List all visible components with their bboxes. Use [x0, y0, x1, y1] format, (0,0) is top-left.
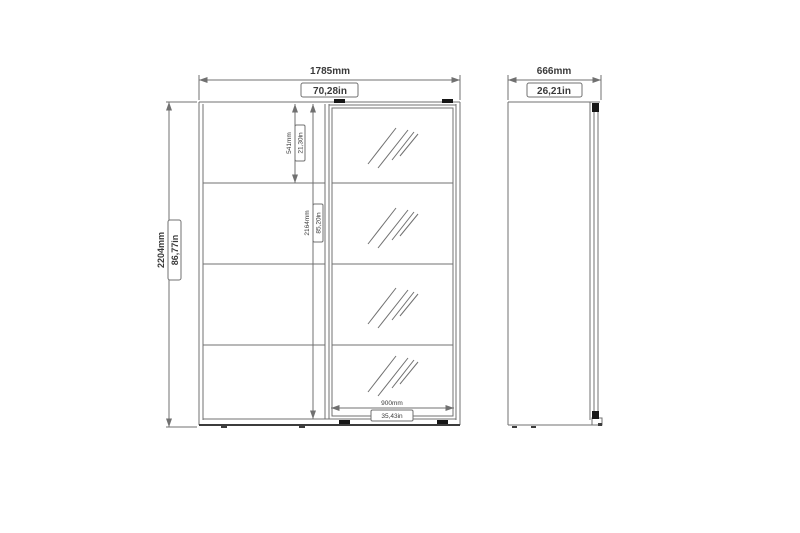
side-cabinet-body: [508, 102, 600, 425]
side-depth-dimension: 666mm 26,21in: [508, 66, 601, 100]
front-height-mm-label: 2204mm: [156, 232, 166, 268]
front-foot-1: [221, 426, 227, 428]
side-foot-2: [531, 426, 536, 428]
front-mirror-door: [329, 105, 456, 419]
top-roller-right: [442, 99, 453, 103]
wardrobe-dimension-drawing: 1785mm 70,28in 2204mm 86,77in 541mm 21,3…: [0, 0, 800, 533]
side-bottom-wheel: [592, 411, 599, 419]
side-foot-1: [512, 426, 517, 428]
mirror-door-width-mm-label: 900mm: [381, 400, 403, 407]
side-view: 666mm 26,21in: [508, 66, 602, 428]
bottom-roller-left: [339, 420, 350, 424]
front-height-dimension: 2204mm 86,77in: [156, 102, 197, 427]
door-height-dimension: 2164mm 85,20in: [304, 104, 323, 419]
side-depth-mm-label: 666mm: [537, 66, 572, 77]
front-width-mm-label: 1785mm: [310, 66, 350, 77]
side-door-profile: [512, 103, 602, 428]
mirror-hatch-panel-4: [368, 356, 418, 396]
bottom-roller-right: [437, 420, 448, 424]
top-roller-left: [334, 99, 345, 103]
top-section-mm-label: 541mm: [286, 132, 293, 154]
mirror-hatch-panel-3: [368, 288, 418, 328]
side-door-foot: [598, 423, 602, 426]
top-section-in-label: 21,30in: [298, 132, 305, 154]
side-top-roller: [592, 103, 599, 112]
mirror-door-width-dimension: 900mm 35,43in: [331, 400, 454, 421]
front-foot-2: [299, 426, 305, 428]
mirror-hatch-panel-1: [368, 128, 418, 168]
front-view: 1785mm 70,28in 2204mm 86,77in 541mm 21,3…: [156, 66, 460, 428]
door-height-in-label: 85,20in: [316, 212, 323, 234]
front-height-in-label: 86,77in: [170, 235, 180, 266]
mirror-door-width-in-label: 35,43in: [381, 413, 403, 420]
front-width-in-label: 70,28in: [313, 86, 347, 97]
technical-drawing-canvas: 1785mm 70,28in 2204mm 86,77in 541mm 21,3…: [0, 0, 800, 533]
front-width-dimension: 1785mm 70,28in: [199, 66, 460, 100]
mirror-hatch-panel-2: [368, 208, 418, 248]
side-depth-in-label: 26,21in: [537, 86, 571, 97]
top-section-dimension: 541mm 21,30in: [286, 104, 305, 183]
door-height-mm-label: 2164mm: [304, 210, 311, 235]
front-left-door: [203, 104, 329, 419]
